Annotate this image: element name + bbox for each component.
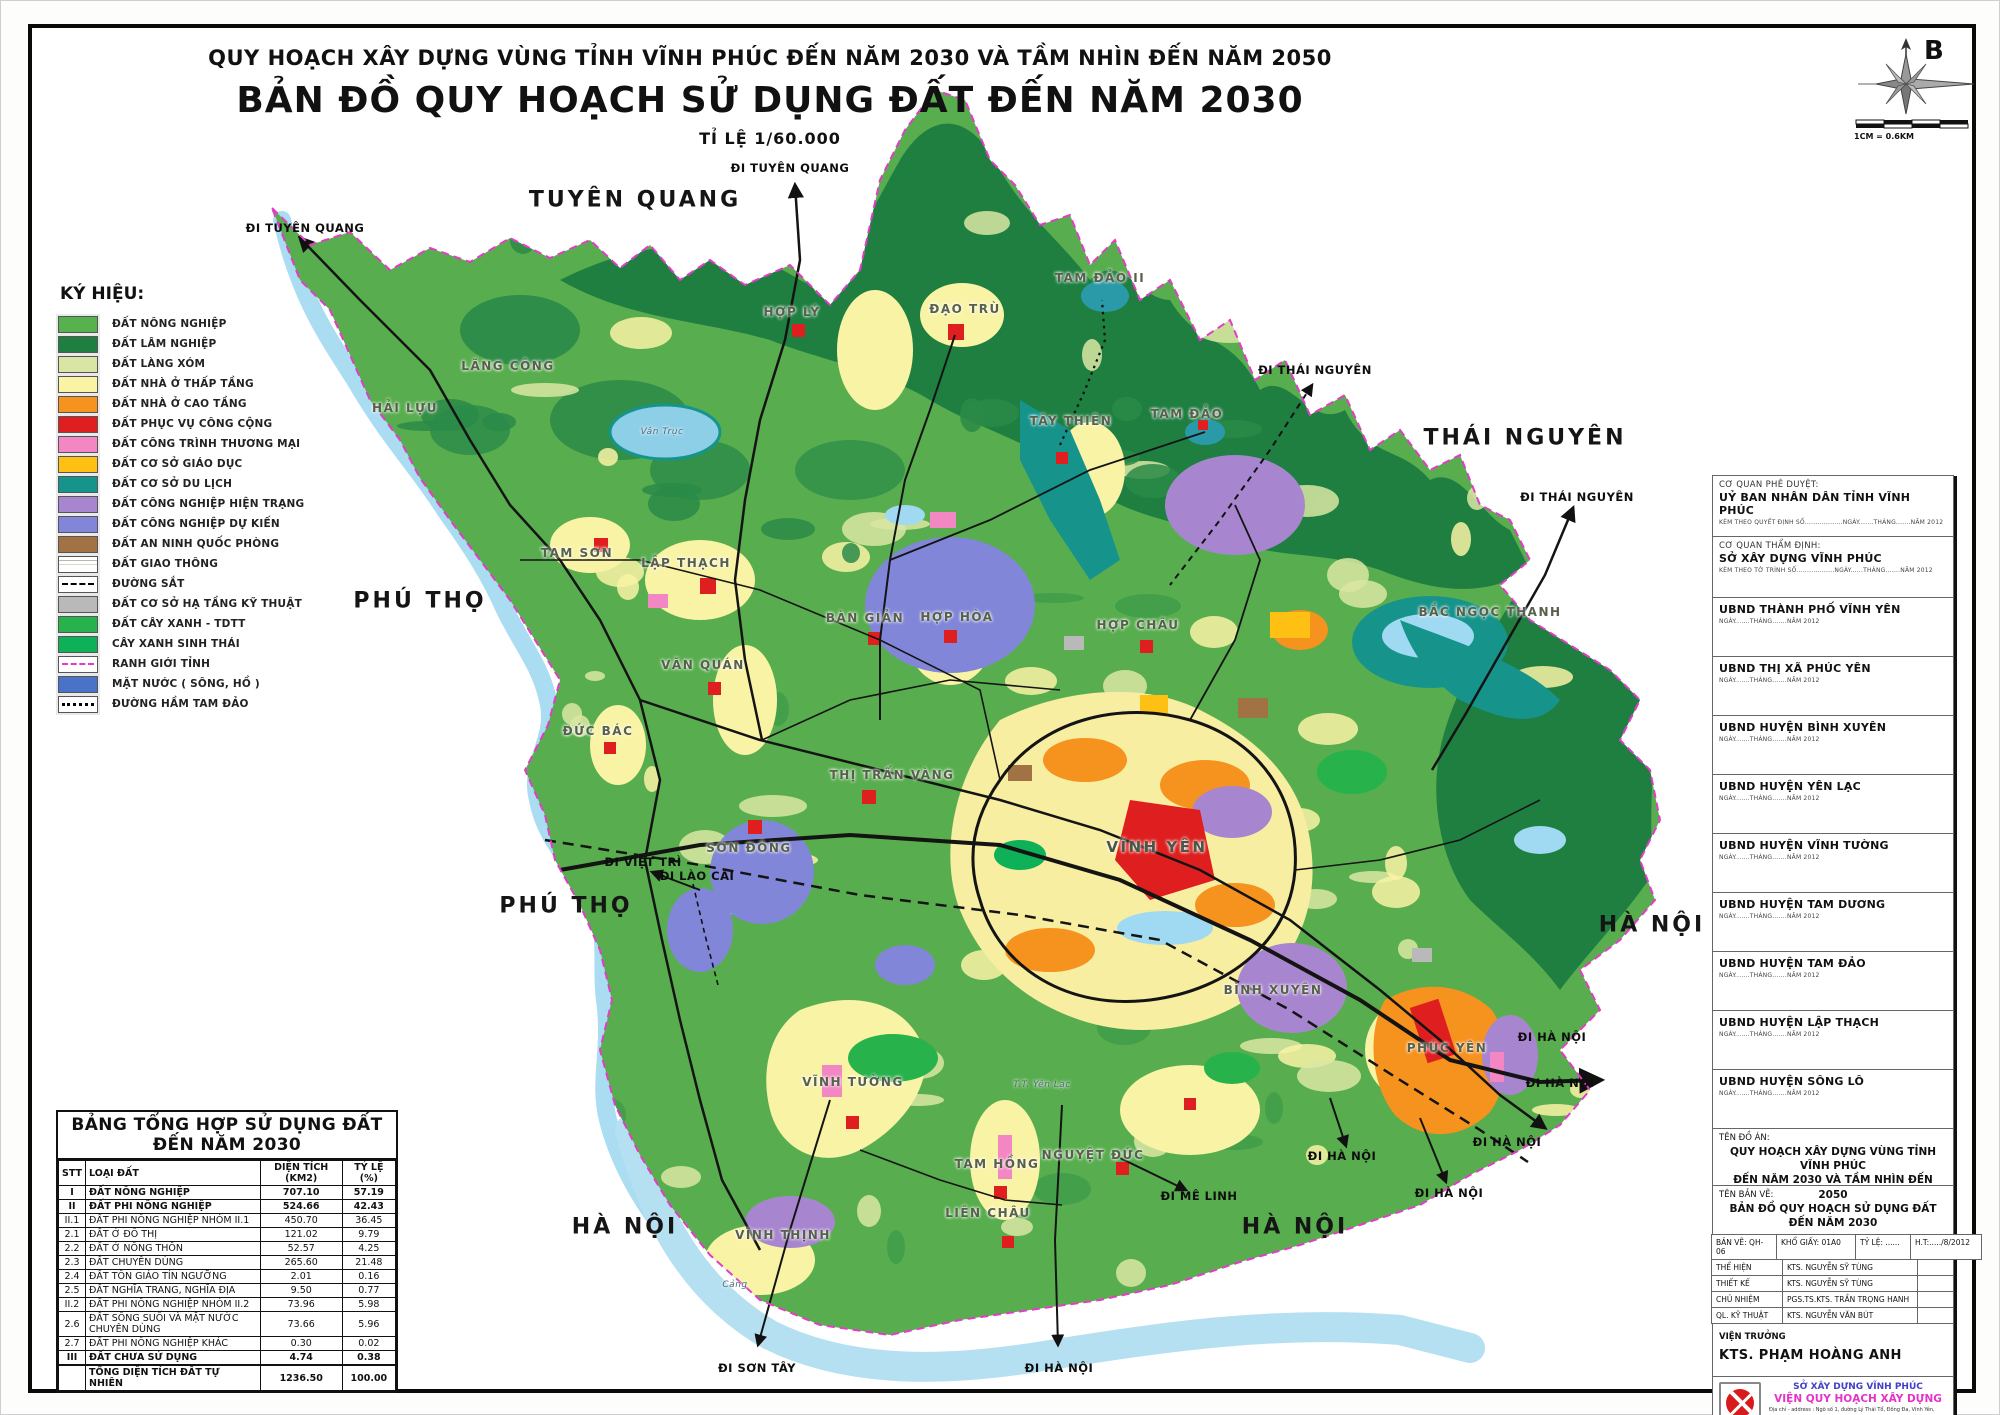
legend-title: KÝ HIỆU: [60, 284, 308, 304]
table-cell: 2.1 [59, 1228, 86, 1242]
legend-item: ĐẤT PHỤC VỤ CÔNG CỘNG [58, 414, 308, 434]
legend-item: ĐẤT CÂY XANH - TDTT [58, 614, 308, 634]
land-texture-speckle [303, 428, 363, 448]
legend-swatch-fill [58, 436, 98, 453]
panel-signature-line: NGÀY.......THÁNG.......NĂM 2012 [1719, 618, 1947, 625]
table-cell: 5.96 [342, 1312, 395, 1337]
table-cell: 2.6 [59, 1312, 86, 1337]
panel-signature-line: NGÀY.......THÁNG.......NĂM 2012 [1719, 1090, 1947, 1097]
panel-signature-line: NGÀY.......THÁNG.......NĂM 2012 [1719, 795, 1947, 802]
legend-item-label: ĐẤT CÔNG TRÌNH THƯƠNG MẠI [112, 438, 300, 450]
legend-swatch-rail [58, 576, 98, 593]
legend-item-label: RANH GIỚI TỈNH [112, 658, 210, 670]
legend-item-label: ĐẤT CÂY XANH - TDTT [112, 618, 246, 630]
credit-row: THIẾT KẾKTS. NGUYỄN SỸ TÙNG [1712, 1275, 1954, 1292]
org-department: SỞ XÂY DỰNG VĨNH PHÚC [1769, 1382, 1947, 1392]
table-cell: ĐẤT PHI NÔNG NGHIỆP KHÁC [86, 1337, 261, 1351]
legend-item-label: ĐẤT CÔNG NGHIỆP DỰ KIẾN [112, 518, 280, 530]
legend-item-label: ĐẤT NHÀ Ở CAO TẦNG [112, 398, 247, 410]
land-texture-speckle [1323, 364, 1361, 380]
table-cell: ĐẤT Ở ĐÔ THỊ [86, 1228, 261, 1242]
legend-item-label: ĐẤT LÀNG XÓM [112, 358, 205, 370]
approval-panel: CƠ QUAN PHÊ DUYỆT:UỶ BAN NHÂN DÂN TỈNH V… [1712, 475, 1954, 537]
legend-item-label: CÂY XANH SINH THÁI [112, 638, 240, 650]
table-row: II.1ĐẤT PHI NÔNG NGHIỆP NHÓM II.1450.703… [59, 1214, 396, 1228]
approval-panels: CƠ QUAN PHÊ DUYỆT:UỶ BAN NHÂN DÂN TỈNH V… [1712, 475, 1954, 1129]
legend-item-label: ĐẤT CƠ SỞ HẠ TẦNG KỸ THUẬT [112, 598, 302, 610]
table-row: 2.3ĐẤT CHUYÊN DÙNG265.6021.48 [59, 1256, 396, 1270]
drawing-meta-cell: H.T:...../8/2012 [1910, 1234, 1982, 1260]
table-cell: 2.01 [260, 1270, 342, 1284]
land-texture-speckle [1190, 616, 1238, 648]
legend-swatch-fill [58, 616, 98, 633]
panel-heading: CƠ QUAN PHÊ DUYỆT: [1719, 480, 1947, 490]
land-texture-speckle [1480, 315, 1504, 343]
panel-signature-line: KÈM THEO TỜ TRÌNH SỐ..................NG… [1719, 567, 1947, 574]
land-texture-speckle [1306, 1145, 1328, 1165]
land-texture-speckle [284, 1051, 328, 1069]
land-texture-speckle [460, 697, 480, 731]
legend-item: ĐẤT NÔNG NGHIỆP [58, 314, 308, 334]
land-texture-speckle [1455, 218, 1489, 252]
table-row: 2.7ĐẤT PHI NÔNG NGHIỆP KHÁC0.300.02 [59, 1337, 396, 1351]
panel-signature-line: NGÀY.......THÁNG.......NĂM 2012 [1719, 913, 1947, 920]
table-cell: 0.38 [342, 1351, 395, 1366]
land-texture-speckle [446, 787, 490, 821]
approval-panel: CƠ QUAN THẨM ĐỊNH:SỞ XÂY DỰNG VĨNH PHÚCK… [1712, 536, 1954, 598]
table-cell: 73.96 [260, 1298, 342, 1312]
land-texture-speckle [739, 795, 807, 817]
legend-item-label: ĐẤT LÂM NGHIỆP [112, 338, 216, 350]
table-cell: TỔNG DIỆN TÍCH ĐẤT TỰ NHIÊN [86, 1365, 261, 1391]
legend-item: ĐẤT LÂM NGHIỆP [58, 334, 308, 354]
legend-item-label: ĐẤT AN NINH QUỐC PHÒNG [112, 538, 279, 550]
legend-swatch-roads [58, 556, 98, 573]
table-cell: 57.19 [342, 1186, 395, 1200]
legend-swatch-fill [58, 636, 98, 653]
table-cell: 0.77 [342, 1284, 395, 1298]
land-texture-speckle [335, 949, 353, 961]
table-cell: 42.43 [342, 1200, 395, 1214]
legend-swatch-fill [58, 536, 98, 553]
credit-row: CHỦ NHIỆMPGS.TS.KTS. TRẦN TRỌNG HANH [1712, 1291, 1954, 1308]
credit-name: PGS.TS.KTS. TRẦN TRỌNG HANH [1782, 1291, 1918, 1308]
table-cell: 0.02 [342, 1337, 395, 1351]
land-texture-speckle [482, 413, 516, 431]
land-texture-speckle [329, 472, 355, 494]
panel-title: UBND THỊ XÃ PHÚC YÊN [1719, 662, 1947, 675]
drawing-name: BẢN ĐỒ QUY HOẠCH SỬ DỤNG ĐẤT ĐẾN NĂM 203… [1719, 1202, 1947, 1230]
land-texture-speckle [390, 594, 456, 612]
drawing-meta-cell: BẢN VẼ: QH-06 [1711, 1234, 1777, 1260]
table-cell [59, 1365, 86, 1391]
legend-item: ĐƯỜNG SẮT [58, 574, 308, 594]
land-texture-speckle [467, 1121, 521, 1141]
land-texture-speckle [610, 317, 672, 349]
credit-row: THỂ HIỆNKTS. NGUYỄN SỸ TÙNG [1712, 1259, 1954, 1276]
credit-role: CHỦ NHIỆM [1711, 1291, 1783, 1308]
land-texture-speckle [857, 1195, 881, 1227]
legend-swatch-fill [58, 396, 98, 413]
land-texture-speckle [314, 741, 332, 755]
table-cell: 0.30 [260, 1337, 342, 1351]
legend-swatch-fill [58, 416, 98, 433]
table-row: TỔNG DIỆN TÍCH ĐẤT TỰ NHIÊN1236.50100.00 [59, 1365, 396, 1391]
land-texture-speckle [661, 1166, 701, 1188]
table-row: IIĐẤT PHI NÔNG NGHIỆP524.6642.43 [59, 1200, 396, 1214]
legend-item: MẶT NƯỚC ( SÔNG, HỒ ) [58, 674, 308, 694]
panel-signature-line: NGÀY.......THÁNG.......NĂM 2012 [1719, 677, 1947, 684]
approval-panel: UBND HUYỆN TAM ĐẢONGÀY.......THÁNG......… [1712, 951, 1954, 1011]
land-texture-speckle [471, 1210, 497, 1246]
legend-swatch-fill [58, 376, 98, 393]
legend-item: ĐẤT CƠ SỞ HẠ TẦNG KỸ THUẬT [58, 594, 308, 614]
table-cell: II [59, 1200, 86, 1214]
legend-item: ĐẤT CƠ SỞ GIÁO DỤC [58, 454, 308, 474]
legend-item: ĐƯỜNG HẦM TAM ĐẢO [58, 694, 308, 714]
map-scale: TỈ LỆ 1/60.000 [150, 129, 1390, 148]
land-texture-speckle [812, 262, 832, 296]
legend-item-label: MẶT NƯỚC ( SÔNG, HỒ ) [112, 678, 260, 690]
legend-items: ĐẤT NÔNG NGHIỆPĐẤT LÂM NGHIỆPĐẤT LÀNG XÓ… [58, 314, 308, 714]
land-texture-speckle [1001, 1218, 1033, 1236]
table-row: 2.1ĐẤT Ở ĐÔ THỊ121.029.79 [59, 1228, 396, 1242]
land-texture-speckle [1327, 558, 1369, 592]
org-address: Địa chỉ - address : Ngõ số 1, đường Lý T… [1769, 1407, 1947, 1415]
approval-panel: UBND THÀNH PHỐ VĨNH YÊNNGÀY.......THÁNG.… [1712, 597, 1954, 657]
legend-item-label: ĐẤT CƠ SỞ GIÁO DỤC [112, 458, 242, 470]
table-cell: 9.79 [342, 1228, 395, 1242]
land-texture-speckle [1005, 667, 1057, 695]
land-texture-speckle [1265, 1092, 1283, 1124]
table-cell: 265.60 [260, 1256, 342, 1270]
map-sheet: TUYÊN QUANGTHÁI NGUYÊNPHÚ THỌPHÚ THỌHÀ N… [0, 0, 2000, 1415]
land-texture-speckle [372, 785, 404, 805]
land-texture-speckle [1115, 594, 1181, 618]
approval-panel: UBND HUYỆN LẬP THẠCHNGÀY.......THÁNG....… [1712, 1010, 1954, 1070]
land-texture-speckle [585, 671, 605, 681]
legend-swatch-fill [58, 516, 98, 533]
legend-swatch-fill [58, 336, 98, 353]
scale-bar-text: 1CM = 0.6KM [1854, 132, 1914, 141]
legend-line-glyph [62, 663, 94, 665]
credit-blank [1917, 1259, 1954, 1276]
table-cell: ĐẤT Ở NÔNG THÔN [86, 1242, 261, 1256]
table-row: II.2ĐẤT PHI NÔNG NGHIỆP NHÓM II.273.965.… [59, 1298, 396, 1312]
table-col-header: STT [59, 1161, 86, 1186]
land-texture-speckle [1568, 479, 1604, 511]
credit-rows: THỂ HIỆNKTS. NGUYỄN SỸ TÙNGTHIẾT KẾKTS. … [1712, 1259, 1954, 1324]
map-subtitle: QUY HOẠCH XÂY DỰNG VÙNG TỈNH VĨNH PHÚC Đ… [150, 46, 1390, 70]
land-texture-speckle [319, 704, 345, 732]
legend-item-label: ĐẤT CƠ SỞ DU LỊCH [112, 478, 232, 490]
table-row: 2.5ĐẤT NGHĨA TRANG, NGHĨA ĐỊA9.500.77 [59, 1284, 396, 1298]
legend-item-label: ĐẤT PHỤC VỤ CÔNG CỘNG [112, 418, 272, 430]
land-texture-speckle [1532, 1104, 1580, 1116]
land-texture-speckle [483, 1206, 547, 1220]
legend-swatch-fill [58, 356, 98, 373]
panel-heading: CƠ QUAN THẨM ĐỊNH: [1719, 541, 1947, 551]
legend-item-label: ĐẤT NÔNG NGHIỆP [112, 318, 227, 330]
land-texture-speckle [1372, 876, 1420, 908]
table-row: 2.2ĐẤT Ở NÔNG THÔN52.574.25 [59, 1242, 396, 1256]
legend-item-label: ĐƯỜNG HẦM TAM ĐẢO [112, 698, 249, 710]
land-texture-speckle [1509, 495, 1559, 519]
north-label: B [1924, 36, 1944, 66]
panel-title: UBND HUYỆN YÊN LẠC [1719, 780, 1947, 793]
legend-item: RANH GIỚI TỈNH [58, 654, 308, 674]
table-cell: 2.5 [59, 1284, 86, 1298]
table-cell: 5.98 [342, 1298, 395, 1312]
table-row: 2.6ĐẤT SÔNG SUỐI VÀ MẶT NƯỚC CHUYÊN DÙNG… [59, 1312, 396, 1337]
table-cell: I [59, 1186, 86, 1200]
legend-swatch-fill [58, 596, 98, 613]
legend-line-glyph [62, 583, 94, 585]
table-cell: II.2 [59, 1298, 86, 1312]
table-cell: 121.02 [260, 1228, 342, 1242]
table-cell: ĐẤT CHƯA SỬ DỤNG [86, 1351, 261, 1366]
land-texture-speckle [1451, 522, 1471, 556]
scale-bar [1856, 120, 1968, 128]
panel-title: SỞ XÂY DỰNG VĨNH PHÚC [1719, 552, 1947, 565]
panel-signature-line: NGÀY.......THÁNG.......NĂM 2012 [1719, 736, 1947, 743]
project-name-line1: QUY HOẠCH XÂY DỰNG VÙNG TỈNH VĨNH PHÚC [1730, 1146, 1936, 1172]
table-row: 2.4ĐẤT TÔN GIÁO TÍN NGƯỠNG2.010.16 [59, 1270, 396, 1284]
panel-signature-line: NGÀY.......THÁNG.......NĂM 2012 [1719, 972, 1947, 979]
director-box: VIỆN TRƯỞNG KTS. PHẠM HOÀNG ANH [1712, 1323, 1954, 1377]
land-texture-speckle [348, 641, 384, 651]
table-cell: 52.57 [260, 1242, 342, 1256]
legend-item: ĐẤT AN NINH QUỐC PHÒNG [58, 534, 308, 554]
land-texture-speckle [1615, 630, 1633, 664]
table-cell: ĐẤT PHI NÔNG NGHIỆP NHÓM II.2 [86, 1298, 261, 1312]
table-cell: II.1 [59, 1214, 86, 1228]
compass-graphic [1848, 36, 1978, 146]
table-cell: 0.16 [342, 1270, 395, 1284]
land-texture-speckle [348, 548, 380, 568]
land-texture-speckle [960, 398, 984, 432]
credit-blank [1917, 1307, 1954, 1324]
land-texture-speckle [1385, 846, 1407, 880]
credit-name: KTS. NGUYỄN VĂN BÚT [1782, 1307, 1918, 1324]
table-cell: ĐẤT SÔNG SUỐI VÀ MẶT NƯỚC CHUYÊN DÙNG [86, 1312, 261, 1337]
table-cell: 2.3 [59, 1256, 86, 1270]
approval-panel: UBND HUYỆN SÔNG LÔNGÀY.......THÁNG......… [1712, 1069, 1954, 1129]
table-cell: 4.25 [342, 1242, 395, 1256]
legend-item-label: ĐẤT CÔNG NGHIỆP HIỆN TRẠNG [112, 498, 304, 510]
legend-swatch-fill [58, 496, 98, 513]
panel-signature-line: KÈM THEO QUYẾT ĐỊNH SỐ..................… [1719, 519, 1947, 526]
legend-item: ĐẤT GIAO THÔNG [58, 554, 308, 574]
table-cell: 9.50 [260, 1284, 342, 1298]
panel-title: UỶ BAN NHÂN DÂN TỈNH VĨNH PHÚC [1719, 491, 1947, 517]
land-texture-speckle [761, 518, 815, 540]
org-logo: VP.CPI [1719, 1382, 1763, 1415]
land-texture-speckle [286, 907, 340, 927]
approval-panel: UBND THỊ XÃ PHÚC YÊNNGÀY.......THÁNG....… [1712, 656, 1954, 716]
legend-swatch-fill [58, 676, 98, 693]
land-texture-speckle [1112, 397, 1142, 421]
legend-item: ĐẤT CÔNG NGHIỆP HIỆN TRẠNG [58, 494, 308, 514]
land-texture-speckle [617, 574, 639, 600]
land-texture-speckle [835, 220, 853, 230]
land-texture-speckle [887, 1230, 905, 1264]
panel-title: UBND HUYỆN TAM ĐẢO [1719, 957, 1947, 970]
approval-panel: UBND HUYỆN YÊN LẠCNGÀY.......THÁNG......… [1712, 774, 1954, 834]
land-texture-speckle [1298, 713, 1358, 745]
legend-swatch-tunnel [58, 696, 98, 713]
table-cell: 2.4 [59, 1270, 86, 1284]
table-cell: ĐẤT NGHĨA TRANG, NGHĨA ĐỊA [86, 1284, 261, 1298]
vpcpi-logo-icon [1719, 1382, 1761, 1415]
land-texture-speckle [842, 543, 860, 563]
table-cell: 21.48 [342, 1256, 395, 1270]
org-address-line: Địa chỉ - address : Ngõ số 1, đường Lý T… [1769, 1407, 1935, 1415]
organization-box: VP.CPI SỞ XÂY DỰNG VĨNH PHÚC VIỆN QUY HO… [1712, 1376, 1954, 1415]
legend-item: ĐẤT LÀNG XÓM [58, 354, 308, 374]
credit-name: KTS. NGUYỄN SỸ TÙNG [1782, 1259, 1918, 1276]
table-cell: ĐẤT TÔN GIÁO TÍN NGƯỠNG [86, 1270, 261, 1284]
legend-item: ĐẤT CƠ SỞ DU LỊCH [58, 474, 308, 494]
org-institute: VIỆN QUY HOẠCH XÂY DỰNG [1769, 1393, 1947, 1405]
table-cell: ĐẤT NÔNG NGHIỆP [86, 1186, 261, 1200]
panel-title: UBND HUYỆN VĨNH TƯỜNG [1719, 839, 1947, 852]
approval-panel: UBND HUYỆN BÌNH XUYÊNNGÀY.......THÁNG...… [1712, 715, 1954, 775]
table-cell: 4.74 [260, 1351, 342, 1366]
approval-panel: UBND HUYỆN VĨNH TƯỜNGNGÀY.......THÁNG...… [1712, 833, 1954, 893]
table-row: IIIĐẤT CHƯA SỬ DỤNG4.740.38 [59, 1351, 396, 1366]
credit-role: THỂ HIỆN [1711, 1259, 1783, 1276]
panel-title: UBND HUYỆN BÌNH XUYÊN [1719, 721, 1947, 734]
table-cell: 2.7 [59, 1337, 86, 1351]
legend-item: ĐẤT NHÀ Ở CAO TẦNG [58, 394, 308, 414]
legend-item-label: ĐẤT GIAO THÔNG [112, 558, 218, 570]
land-use-table: BẢNG TỔNG HỢP SỬ DỤNG ĐẤT ĐẾN NĂM 2030 S… [56, 1110, 398, 1393]
table-cell: 73.66 [260, 1312, 342, 1337]
land-texture-speckle [1483, 1209, 1549, 1237]
legend: KÝ HIỆU: ĐẤT NÔNG NGHIỆPĐẤT LÂM NGHIỆPĐẤ… [58, 284, 308, 714]
land-texture-speckle [964, 211, 1010, 235]
title-block: QUY HOẠCH XÂY DỰNG VÙNG TỈNH VĨNH PHÚC Đ… [150, 46, 1390, 148]
land-texture-speckle [449, 1044, 495, 1054]
credit-blank [1917, 1275, 1954, 1292]
land-texture-speckle [506, 955, 528, 969]
table-cell: ĐẤT PHI NÔNG NGHIỆP [86, 1200, 261, 1214]
director-role: VIỆN TRƯỞNG [1719, 1332, 1947, 1342]
land-texture-speckle [648, 487, 700, 521]
panel-signature-line: NGÀY.......THÁNG.......NĂM 2012 [1719, 1031, 1947, 1038]
land-texture-speckle [1576, 250, 1600, 276]
panel-title: UBND HUYỆN LẬP THẠCH [1719, 1016, 1947, 1029]
title-block-sidebar: CƠ QUAN PHÊ DUYỆT:UỶ BAN NHÂN DÂN TỈNH V… [1712, 476, 1957, 1415]
table-col-header: LOẠI ĐẤT [86, 1161, 261, 1186]
land-texture-speckle [598, 448, 618, 466]
legend-item: ĐẤT CÔNG TRÌNH THƯƠNG MẠI [58, 434, 308, 454]
panel-title: UBND HUYỆN SÔNG LÔ [1719, 1075, 1947, 1088]
land-texture-speckle [1033, 1173, 1091, 1205]
legend-item: ĐẤT CÔNG NGHIỆP DỰ KIẾN [58, 514, 308, 534]
legend-swatch-fill [58, 476, 98, 493]
legend-item: CÂY XANH SINH THÁI [58, 634, 308, 654]
project-label: TÊN ĐỒ ÁN: [1719, 1133, 1947, 1143]
land-texture-speckle [1116, 1259, 1146, 1287]
table-col-header: TỶ LỆ (%) [342, 1161, 395, 1186]
legend-swatch-fill [58, 456, 98, 473]
table-cell: ĐẤT PHI NÔNG NGHIỆP NHÓM II.1 [86, 1214, 261, 1228]
land-texture-speckle [353, 496, 395, 526]
legend-swatch-boundary [58, 656, 98, 673]
table-cell: 707.10 [260, 1186, 342, 1200]
table-cell: 1236.50 [260, 1365, 342, 1391]
map-title: BẢN ĐỒ QUY HOẠCH SỬ DỤNG ĐẤT ĐẾN NĂM 203… [150, 80, 1390, 121]
table-col-header: DIỆN TÍCH (KM2) [260, 1161, 342, 1186]
land-texture-speckle [1297, 1060, 1361, 1092]
land-texture-speckle [1493, 1257, 1535, 1291]
legend-swatch-fill [58, 316, 98, 333]
director-name: KTS. PHẠM HOÀNG ANH [1719, 1348, 1947, 1363]
table-cell: III [59, 1351, 86, 1366]
land-texture-speckle [397, 421, 457, 431]
drawing-meta-cell: KHỔ GIẤY: 01A0 [1776, 1234, 1856, 1260]
legend-item-label: ĐẤT NHÀ Ở THẤP TẦNG [112, 378, 254, 390]
credit-row: QL. KỸ THUẬTKTS. NGUYỄN VĂN BÚT [1712, 1307, 1954, 1324]
table-cell: 524.66 [260, 1200, 342, 1214]
credit-name: KTS. NGUYỄN SỸ TÙNG [1782, 1275, 1918, 1292]
land-texture-speckle [1578, 573, 1628, 599]
table-cell: 100.00 [342, 1365, 395, 1391]
compass-rose: B 1CM = 0.6KM [1848, 36, 1978, 146]
drawing-meta-cell: TỶ LỆ: ...... [1855, 1234, 1911, 1260]
table-cell: 450.70 [260, 1214, 342, 1228]
land-texture-speckle [505, 983, 569, 1005]
table-cell: 36.45 [342, 1214, 395, 1228]
legend-item-label: ĐƯỜNG SẮT [112, 578, 184, 590]
approval-panel: UBND HUYỆN TAM DƯƠNGNGÀY.......THÁNG....… [1712, 892, 1954, 952]
credit-role: THIẾT KẾ [1711, 1275, 1783, 1292]
drawing-meta-row: BẢN VẼ: QH-06KHỔ GIẤY: 01A0TỶ LỆ: ......… [1712, 1234, 1954, 1260]
credit-blank [1917, 1291, 1954, 1308]
land-texture-speckle [570, 715, 590, 737]
table-title: BẢNG TỔNG HỢP SỬ DỤNG ĐẤT ĐẾN NĂM 2030 [58, 1112, 396, 1160]
land-texture-speckle [339, 837, 371, 853]
project-name-box: TÊN ĐỒ ÁN: QUY HOẠCH XÂY DỰNG VÙNG TỈNH … [1712, 1128, 1954, 1186]
credit-role: QL. KỸ THUẬT [1711, 1307, 1783, 1324]
land-texture-speckle [511, 383, 579, 397]
panel-title: UBND HUYỆN TAM DƯƠNG [1719, 898, 1947, 911]
panel-signature-line: NGÀY.......THÁNG.......NĂM 2012 [1719, 854, 1947, 861]
table-row: IĐẤT NÔNG NGHIỆP707.1057.19 [59, 1186, 396, 1200]
table-header-row: STTLOẠI ĐẤTDIỆN TÍCH (KM2)TỶ LỆ (%) [59, 1161, 396, 1186]
legend-line-glyph [62, 703, 94, 706]
legend-item: ĐẤT NHÀ Ở THẤP TẦNG [58, 374, 308, 394]
table-cell: 2.2 [59, 1242, 86, 1256]
table-cell: ĐẤT CHUYÊN DÙNG [86, 1256, 261, 1270]
panel-title: UBND THÀNH PHỐ VĨNH YÊN [1719, 603, 1947, 616]
